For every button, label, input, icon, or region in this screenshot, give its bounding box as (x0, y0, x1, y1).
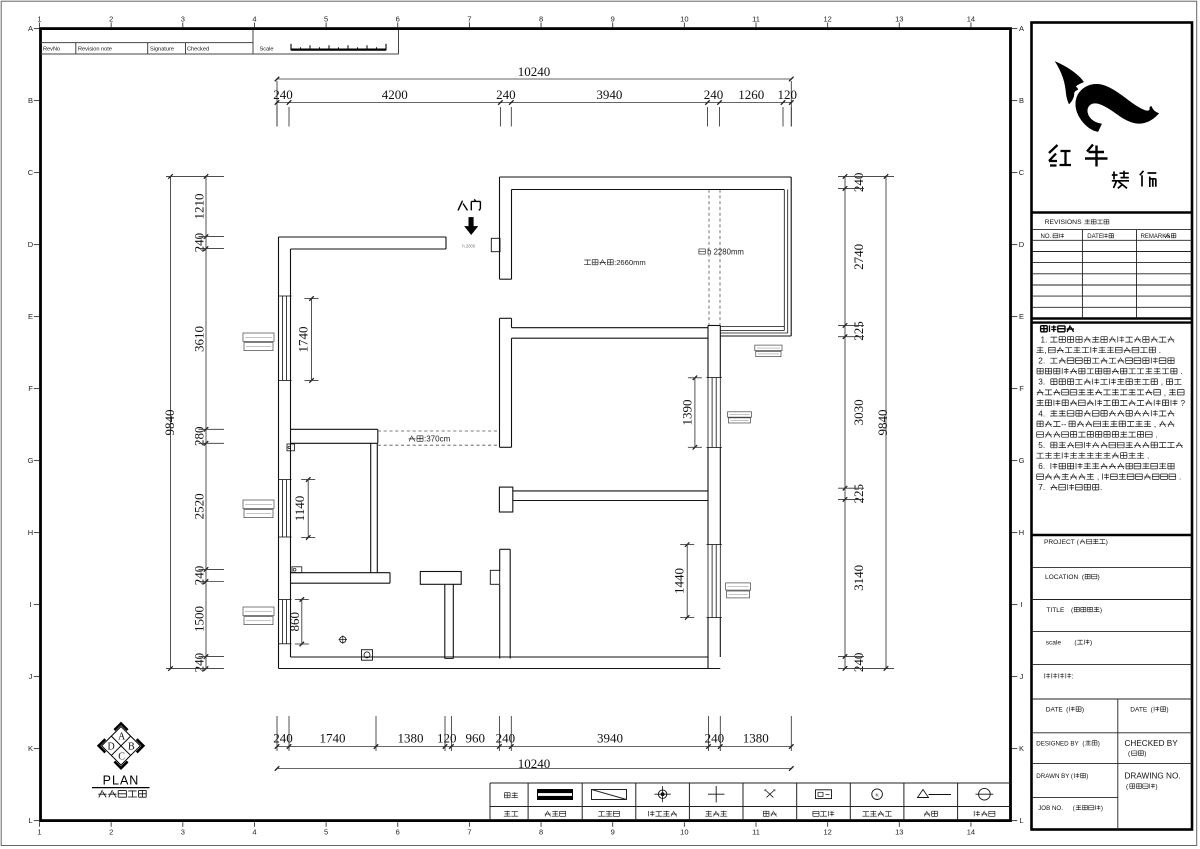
svg-text:240: 240 (192, 566, 207, 586)
svg-text:L: L (28, 816, 32, 825)
svg-text:H: H (28, 528, 33, 537)
svg-text:K: K (28, 744, 33, 753)
svg-text:(: ( (1066, 707, 1069, 714)
svg-text:): ) (1090, 640, 1092, 647)
svg-text:A: A (118, 731, 126, 742)
svg-text:3.: 3. (1036, 378, 1047, 387)
svg-text:PLAN: PLAN (103, 774, 140, 788)
svg-text:240: 240 (192, 653, 207, 673)
svg-text:,: , (1095, 473, 1100, 482)
svg-text:.: . (1145, 452, 1150, 461)
svg-text:(: ( (1128, 751, 1131, 758)
svg-text:7.: 7. (1036, 483, 1047, 492)
svg-text:J: J (29, 672, 33, 681)
svg-text:K: K (875, 792, 879, 798)
svg-text:2: 2 (109, 828, 113, 837)
svg-text:1440: 1440 (672, 568, 687, 594)
svg-text:9: 9 (611, 15, 615, 24)
svg-text:1.: 1. (1036, 336, 1047, 345)
svg-text:12: 12 (823, 828, 831, 837)
svg-text:): ) (1098, 574, 1100, 581)
svg-text:(: ( (1071, 607, 1074, 614)
svg-text:.: . (1157, 346, 1162, 355)
svg-text:3940: 3940 (596, 87, 622, 102)
svg-text:5: 5 (324, 15, 328, 24)
svg-text:10: 10 (680, 15, 688, 24)
svg-text:225: 225 (851, 321, 866, 341)
svg-text:(: ( (1082, 740, 1085, 747)
svg-text:(: ( (1126, 784, 1129, 791)
svg-text:120: 120 (777, 87, 797, 102)
svg-text:(: ( (1077, 539, 1080, 546)
svg-text:240: 240 (496, 731, 516, 746)
svg-text:DESIGNED BY: DESIGNED BY (1036, 740, 1080, 747)
svg-text:1380: 1380 (398, 731, 424, 746)
svg-text:4: 4 (252, 828, 256, 837)
svg-text:1390: 1390 (680, 400, 695, 426)
svg-text:6: 6 (396, 828, 400, 837)
svg-text:CHECKED BY: CHECKED BY (1125, 739, 1179, 748)
svg-text:--: -- (1061, 420, 1067, 429)
svg-text:8: 8 (539, 15, 543, 24)
svg-text:7: 7 (467, 828, 471, 837)
svg-text:2.: 2. (1036, 357, 1047, 366)
svg-text:1500: 1500 (192, 606, 207, 632)
svg-text:.: . (1153, 430, 1158, 439)
svg-text:scale: scale (1046, 640, 1065, 647)
svg-text:H: H (1019, 528, 1024, 537)
svg-text:D: D (28, 240, 34, 249)
svg-text:DRAWING NO.: DRAWING NO. (1125, 772, 1181, 781)
svg-text:): ) (1082, 707, 1084, 714)
svg-text:Signature: Signature (150, 47, 174, 53)
svg-text:1: 1 (37, 828, 41, 837)
svg-text:2: 2 (109, 15, 113, 24)
svg-text:240: 240 (192, 233, 207, 253)
svg-text:240: 240 (496, 87, 516, 102)
svg-text:DATE: DATE (1087, 234, 1104, 240)
svg-text:A: A (1019, 24, 1024, 33)
svg-text:225: 225 (851, 484, 866, 504)
svg-text:NO.: NO. (1041, 234, 1053, 240)
svg-text:5.: 5. (1036, 441, 1047, 450)
svg-text:240: 240 (705, 731, 725, 746)
svg-text:10240: 10240 (518, 64, 551, 79)
svg-text:14: 14 (967, 828, 975, 837)
svg-text:E: E (28, 312, 33, 321)
svg-text:240: 240 (273, 731, 293, 746)
svg-text:240: 240 (851, 653, 866, 673)
svg-text:,: , (1152, 420, 1157, 429)
svg-text:(: ( (1074, 640, 1077, 647)
svg-text:3140: 3140 (851, 565, 866, 591)
svg-text:DATE: DATE (1130, 707, 1149, 714)
svg-text:13: 13 (895, 15, 903, 24)
svg-text:): ) (1100, 607, 1102, 614)
svg-text:11: 11 (752, 15, 760, 24)
svg-text:): ) (1086, 773, 1088, 780)
svg-text:14: 14 (967, 15, 975, 24)
svg-text:.: . (1177, 473, 1182, 482)
svg-text:7: 7 (467, 15, 471, 24)
svg-text:D: D (1019, 240, 1025, 249)
svg-text:1380: 1380 (743, 731, 769, 746)
svg-text:.: . (1178, 367, 1183, 376)
svg-text:1210: 1210 (192, 194, 207, 220)
svg-text::370cm: :370cm (424, 435, 451, 444)
svg-text:3940: 3940 (597, 731, 623, 746)
svg-text:B: B (128, 742, 135, 753)
svg-text:12: 12 (823, 15, 831, 24)
svg-text:3030: 3030 (851, 399, 866, 425)
svg-text:120: 120 (437, 731, 457, 746)
svg-text:6.: 6. (1036, 462, 1047, 471)
svg-text:11: 11 (752, 828, 760, 837)
svg-text:,: , (1044, 346, 1046, 355)
svg-text:): ) (1155, 784, 1157, 791)
svg-text:): ) (1106, 539, 1108, 546)
svg-text:2520: 2520 (192, 493, 207, 519)
svg-text:Revision note: Revision note (78, 47, 112, 53)
svg-text:): ) (1098, 740, 1100, 747)
svg-text:D: D (107, 742, 114, 753)
svg-text:F: F (28, 384, 33, 393)
svg-text:REVISIONS: REVISIONS (1045, 219, 1084, 226)
svg-text:?: ? (1178, 399, 1185, 408)
svg-text:4: 4 (252, 15, 256, 24)
svg-text:Checked: Checked (187, 47, 209, 53)
svg-text:5: 5 (324, 828, 328, 837)
svg-text:,: , (1159, 378, 1164, 387)
svg-text:B: B (28, 96, 33, 105)
svg-text:1140: 1140 (292, 496, 307, 522)
svg-text:I: I (1020, 600, 1022, 609)
svg-text:240: 240 (851, 173, 866, 193)
svg-text:E: E (1019, 312, 1024, 321)
svg-text:h.2800: h.2800 (462, 243, 475, 248)
svg-text:3: 3 (181, 15, 185, 24)
svg-text:10: 10 (680, 828, 688, 837)
svg-text:.: . (1100, 483, 1102, 492)
svg-text:860: 860 (287, 612, 302, 632)
svg-text:3: 3 (181, 828, 185, 837)
svg-text:TITLE: TITLE (1046, 607, 1066, 614)
svg-text:G: G (28, 456, 34, 465)
svg-text:9840: 9840 (162, 410, 177, 436)
svg-text:1740: 1740 (320, 731, 346, 746)
svg-text:): ) (1101, 805, 1103, 812)
svg-text:(: ( (1071, 773, 1074, 780)
svg-text:1740: 1740 (296, 327, 311, 353)
svg-text:J: J (1020, 672, 1024, 681)
svg-text:9: 9 (611, 828, 615, 837)
svg-text:Scale: Scale (260, 47, 274, 53)
svg-text:PROJECT: PROJECT (1044, 539, 1077, 546)
svg-text:L: L (1019, 816, 1023, 825)
svg-text:4.: 4. (1036, 409, 1047, 418)
svg-text:h 2280mm: h 2280mm (707, 247, 744, 256)
svg-text:3610: 3610 (192, 326, 207, 352)
svg-text:10240: 10240 (518, 756, 551, 771)
svg-text:A: A (28, 24, 33, 33)
svg-text:): ) (1166, 707, 1168, 714)
svg-text::2660mm: :2660mm (614, 258, 646, 267)
svg-text:C: C (1019, 168, 1025, 177)
svg-text:1: 1 (37, 15, 41, 24)
svg-text:(: ( (1073, 805, 1076, 812)
svg-text:DATE: DATE (1046, 707, 1065, 714)
svg-text:F: F (1019, 384, 1024, 393)
svg-text:): ) (1144, 751, 1146, 758)
svg-text:DRAWN BY: DRAWN BY (1036, 773, 1071, 780)
svg-text:,: , (1161, 388, 1166, 397)
svg-text:C: C (118, 752, 125, 763)
svg-text:(: ( (1151, 707, 1154, 714)
svg-text:4200: 4200 (382, 87, 408, 102)
svg-text:2740: 2740 (851, 244, 866, 270)
svg-text:960: 960 (465, 731, 485, 746)
svg-text:K: K (1019, 744, 1024, 753)
svg-text:B: B (1019, 96, 1024, 105)
svg-text:LOCATION: LOCATION (1045, 574, 1080, 581)
svg-text:8: 8 (539, 828, 543, 837)
svg-text:C: C (28, 168, 34, 177)
svg-text:G: G (1019, 456, 1025, 465)
svg-text:(: ( (1082, 574, 1085, 581)
svg-text::: : (1072, 674, 1074, 681)
svg-text:6: 6 (396, 15, 400, 24)
svg-text:1260: 1260 (738, 87, 764, 102)
svg-text:240: 240 (273, 87, 293, 102)
svg-text:JOB NO.: JOB NO. (1038, 805, 1066, 812)
svg-text:240: 240 (704, 87, 724, 102)
svg-text:I: I (29, 600, 31, 609)
svg-text:RevNo: RevNo (43, 47, 60, 53)
svg-text:9840: 9840 (875, 410, 890, 436)
svg-text:13: 13 (895, 828, 903, 837)
